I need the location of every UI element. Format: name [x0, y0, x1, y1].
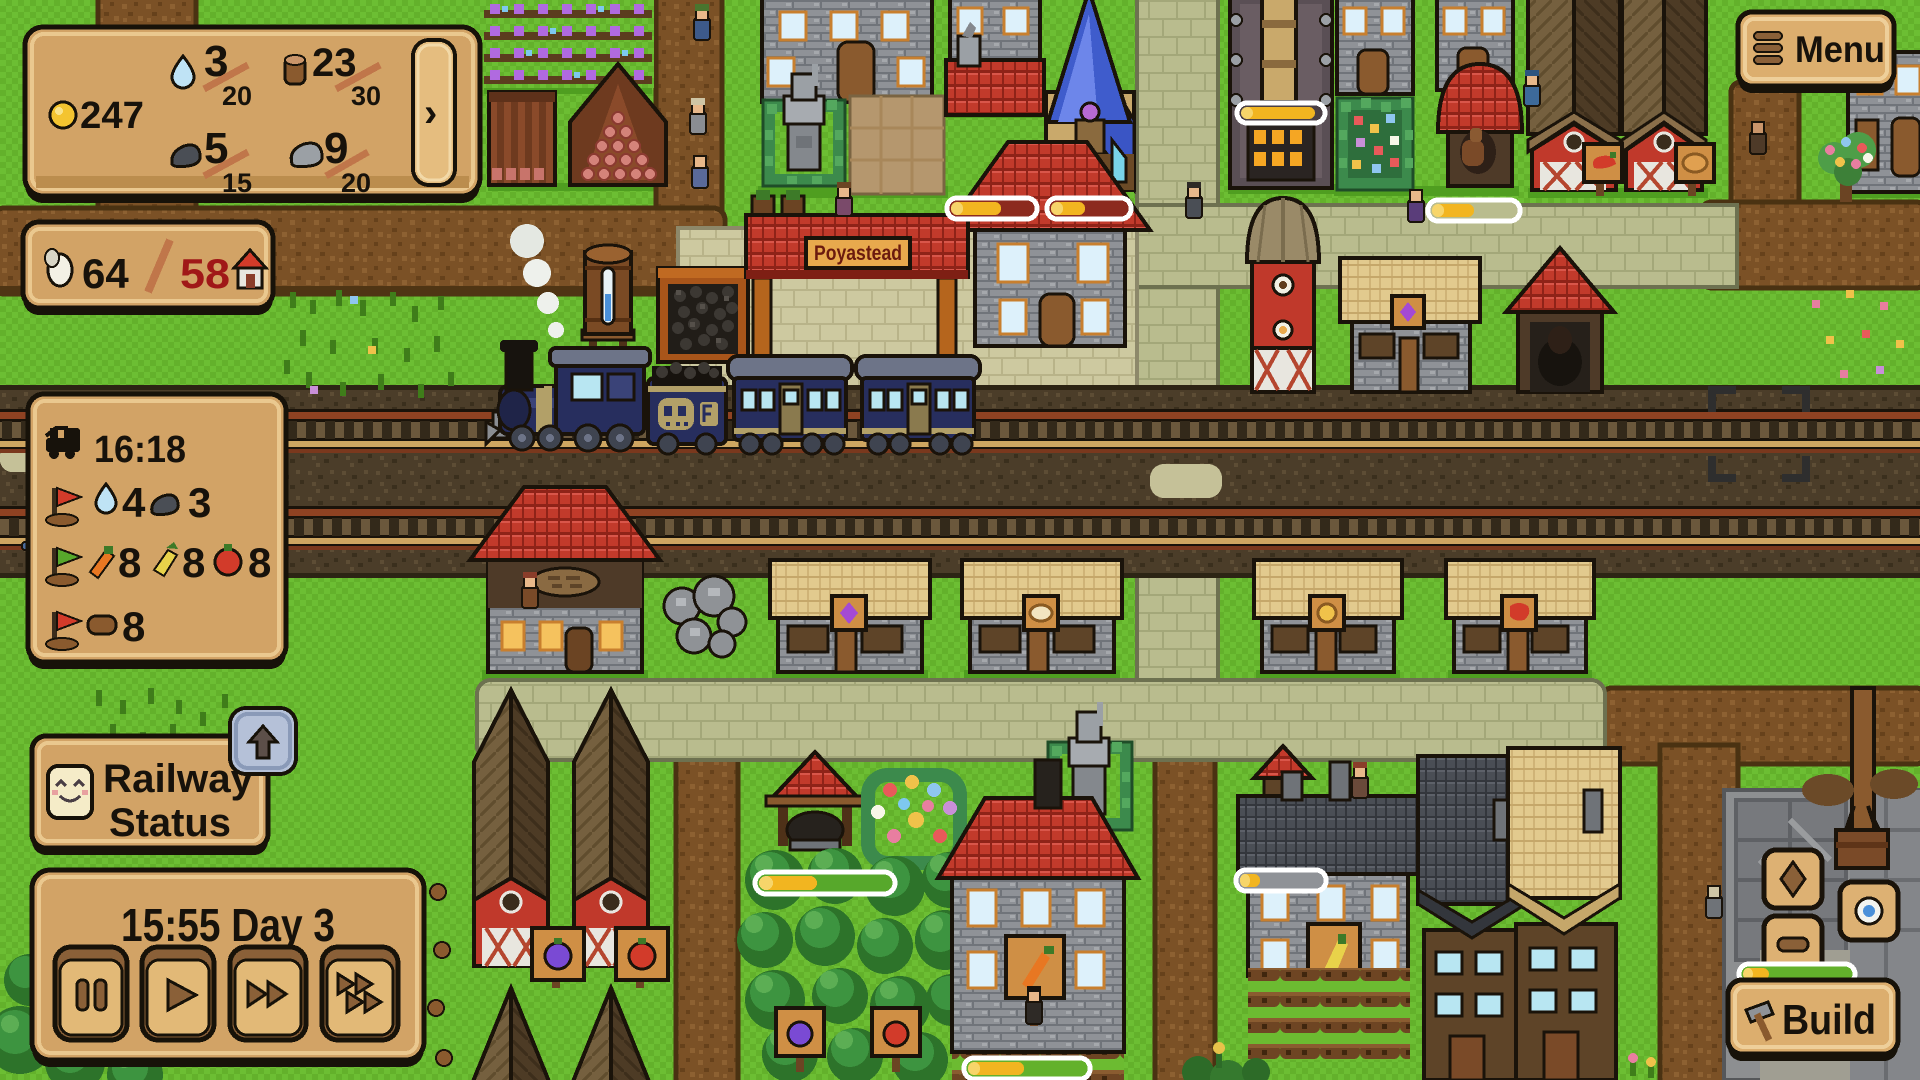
svg-text:Build: Build	[1782, 996, 1876, 1043]
svg-text:30: 30	[351, 81, 381, 111]
svg-text:3: 3	[188, 479, 211, 526]
svg-text:4: 4	[122, 479, 146, 526]
svg-text:8: 8	[122, 603, 145, 650]
svg-text:›: ›	[424, 91, 437, 135]
svg-text:20: 20	[341, 168, 371, 198]
svg-text:247: 247	[80, 95, 144, 137]
svg-text:Poyastead: Poyastead	[814, 242, 902, 265]
svg-text:20: 20	[222, 81, 252, 111]
svg-text:Status: Status	[109, 801, 231, 845]
svg-text:8: 8	[248, 539, 271, 586]
svg-text:15: 15	[222, 168, 252, 198]
svg-text:58: 58	[180, 250, 230, 297]
svg-text:8: 8	[182, 539, 205, 586]
svg-text:15:55 Day 3: 15:55 Day 3	[121, 899, 335, 951]
svg-text:64: 64	[82, 250, 129, 297]
svg-text:8: 8	[118, 539, 141, 586]
svg-text:Menu: Menu	[1795, 29, 1885, 70]
svg-text:16:18: 16:18	[94, 429, 186, 471]
